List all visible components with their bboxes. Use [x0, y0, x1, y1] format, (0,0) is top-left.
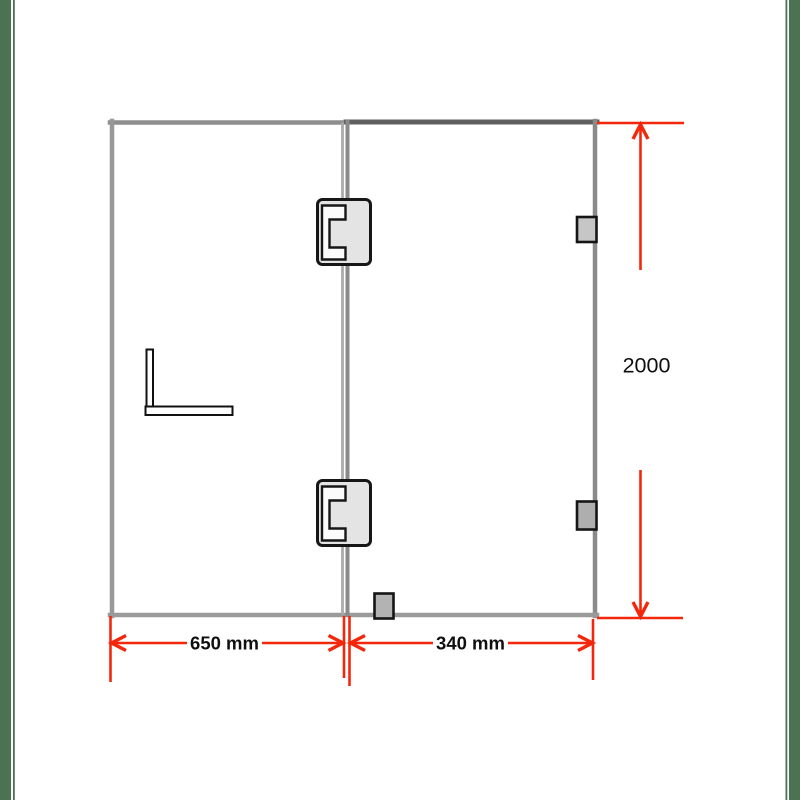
right-panel-width-label: 340 mm — [436, 633, 505, 654]
left-panel-width-label: 650 mm — [190, 633, 259, 654]
wall-clip-top-right — [577, 217, 597, 242]
right-border-band — [789, 0, 800, 800]
bracket-horizontal-arm — [146, 407, 233, 416]
left-border-pinline — [13, 0, 15, 800]
glass-hinge-bottom — [318, 481, 371, 546]
wall-clip-mid-right — [577, 502, 597, 530]
left-border-band — [0, 0, 11, 800]
dimension-lines — [111, 123, 685, 686]
floor-clip-bottom-center — [375, 594, 394, 619]
l-shaped-support-bracket — [146, 350, 233, 416]
right-border-pinline — [786, 0, 788, 800]
total-height-label: 2000 — [623, 354, 671, 378]
shower-screen-diagram: 650 mm 340 mm 2000 — [0, 0, 800, 800]
bracket-vertical-arm — [147, 350, 154, 408]
glass-hinge-top — [318, 200, 371, 265]
diagram-canvas: 650 mm 340 mm 2000 — [0, 0, 800, 800]
